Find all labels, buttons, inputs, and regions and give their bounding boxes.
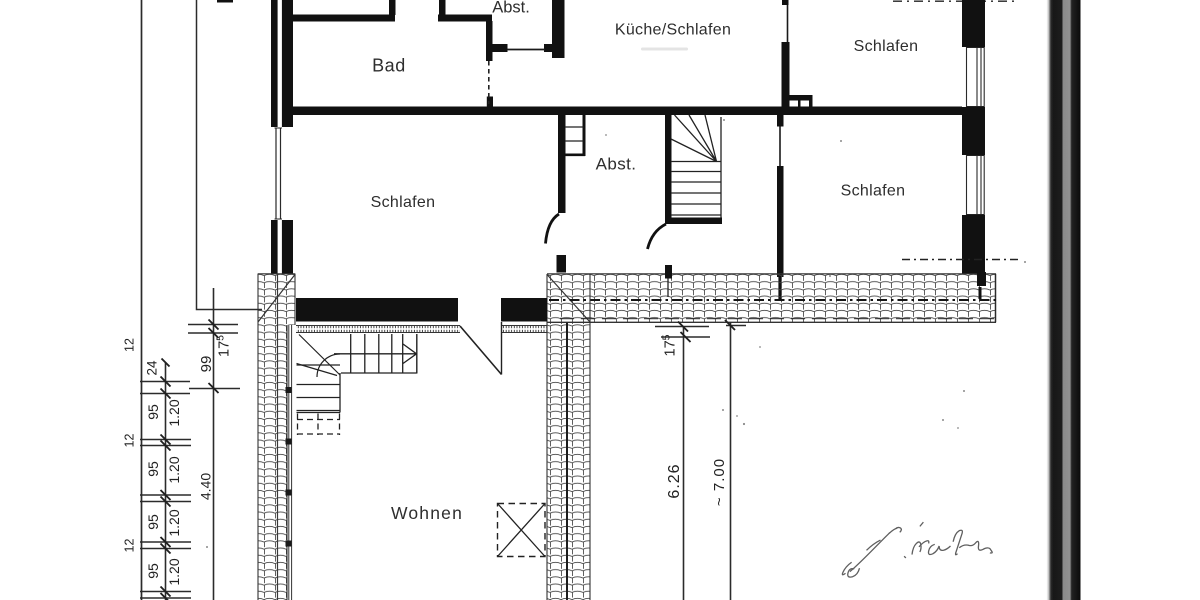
svg-text:1.20: 1.20 xyxy=(166,456,182,483)
svg-text:6.26: 6.26 xyxy=(666,463,683,498)
svg-text:95: 95 xyxy=(145,514,161,530)
svg-text:95: 95 xyxy=(145,404,161,420)
svg-text:Abst.: Abst. xyxy=(596,155,637,174)
svg-text:95: 95 xyxy=(145,563,161,579)
svg-text:4.40: 4.40 xyxy=(198,473,214,500)
svg-text:1.20: 1.20 xyxy=(166,399,182,426)
svg-text:1.20: 1.20 xyxy=(166,558,182,585)
svg-text:Schlafen: Schlafen xyxy=(371,194,436,211)
svg-text:Schlafen: Schlafen xyxy=(841,183,906,200)
svg-text:1.20: 1.20 xyxy=(166,509,182,536)
svg-text:~ 7.00: ~ 7.00 xyxy=(711,458,728,506)
svg-text:Bad: Bad xyxy=(372,56,406,76)
svg-text:Küche/Schlafen: Küche/Schlafen xyxy=(615,22,731,39)
svg-text:Wohnen: Wohnen xyxy=(391,503,463,523)
svg-text:95: 95 xyxy=(145,461,161,477)
svg-text:12: 12 xyxy=(123,338,137,352)
svg-text:Abst.: Abst. xyxy=(492,0,530,17)
svg-text:12: 12 xyxy=(123,539,137,553)
svg-text:24: 24 xyxy=(145,360,160,376)
svg-text:175: 175 xyxy=(215,335,233,357)
svg-text:99: 99 xyxy=(198,356,215,373)
svg-text:12: 12 xyxy=(123,434,137,448)
svg-text:Schlafen: Schlafen xyxy=(854,38,919,55)
